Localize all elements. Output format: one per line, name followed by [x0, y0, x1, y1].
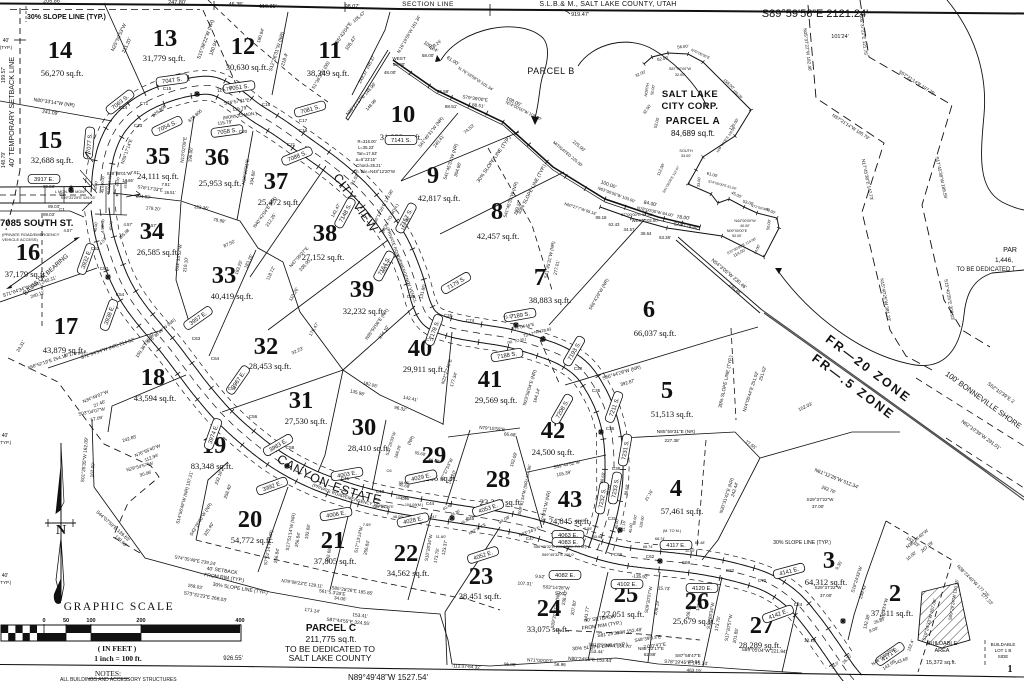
svg-text:C64: C64 — [211, 356, 220, 361]
svg-text:7.59': 7.59' — [363, 522, 372, 527]
svg-text:21: 21 — [321, 527, 346, 554]
svg-text:55.68': 55.68' — [593, 535, 604, 539]
svg-text:37.00': 37.00' — [812, 504, 824, 509]
svg-text:4082 E.: 4082 E. — [555, 573, 575, 579]
svg-text:89.03': 89.03' — [43, 184, 55, 189]
svg-text:C58: C58 — [286, 445, 295, 450]
svg-text:17: 17 — [54, 313, 79, 340]
svg-text:27,530 sq.ft.: 27,530 sq.ft. — [285, 416, 328, 426]
svg-text:4: 4 — [670, 475, 682, 502]
svg-text:82.48': 82.48' — [695, 541, 706, 545]
svg-text:57,461 sq.ft.: 57,461 sq.ft. — [661, 506, 704, 516]
svg-text:18: 18 — [141, 364, 166, 391]
svg-text:3: 3 — [823, 547, 835, 574]
svg-text:7.81': 7.81' — [131, 170, 140, 175]
svg-text:116.35': 116.35' — [259, 4, 276, 10]
svg-text:4.57': 4.57' — [148, 223, 157, 228]
svg-text:C21: C21 — [287, 142, 296, 147]
svg-text:33.00': 33.00' — [681, 154, 692, 158]
svg-text:Ch. Div.=N48°12'20”W: Ch. Div.=N48°12'20”W — [353, 169, 395, 174]
svg-text:43: 43 — [558, 486, 583, 513]
svg-text:26,585 sq.ft.: 26,585 sq.ft. — [137, 247, 180, 257]
svg-text:32,688 sq.ft.: 32,688 sq.ft. — [31, 155, 74, 165]
svg-text:WEST: WEST — [392, 56, 405, 61]
svg-text:28,453 sq.ft.: 28,453 sq.ft. — [249, 361, 292, 371]
svg-text:25,472 sq.ft.: 25,472 sq.ft. — [258, 197, 301, 207]
svg-text:25,953 sq.ft.: 25,953 sq.ft. — [199, 178, 242, 188]
svg-text:56.00': 56.00' — [677, 44, 689, 50]
svg-text:2: 2 — [889, 580, 901, 607]
svg-text:29,911 sq.ft.: 29,911 sq.ft. — [403, 364, 445, 374]
svg-text:104.09(M.): 104.09(M.) — [405, 503, 424, 507]
svg-text:C54: C54 — [116, 292, 125, 297]
svg-text:PAR: PAR — [1003, 247, 1017, 254]
svg-text:41: 41 — [478, 366, 503, 393]
svg-text:37.00': 37.00' — [820, 593, 832, 598]
svg-text:L=35.23': L=35.23' — [358, 145, 374, 150]
svg-text:31,779 sq.ft.: 31,779 sq.ft. — [143, 53, 186, 63]
svg-text:42,457 sq.ft.: 42,457 sq.ft. — [477, 231, 520, 241]
svg-text:S29°37'22”W: S29°37'22”W — [807, 497, 835, 502]
svg-text:40.00': 40.00' — [740, 224, 750, 228]
svg-text:40.00: 40.00 — [101, 176, 106, 185]
svg-text:15,372 sq.ft.: 15,372 sq.ft. — [926, 660, 957, 666]
svg-text:96.06': 96.06' — [504, 662, 517, 668]
svg-text:102.92': 102.92' — [396, 496, 409, 500]
svg-text:4120 E.: 4120 E. — [692, 586, 712, 592]
svg-text:34,562 sq.ft.: 34,562 sq.ft. — [387, 568, 430, 578]
svg-text:S89°45'32”E 206.0': S89°45'32”E 206.0' — [542, 553, 575, 557]
svg-text:C19: C19 — [299, 128, 308, 133]
svg-text:199.57': 199.57' — [1, 67, 7, 83]
svg-text:5.00': 5.00' — [555, 591, 565, 597]
svg-text:( IN FEET ): ( IN FEET ) — [98, 644, 137, 653]
svg-text:37: 37 — [264, 168, 289, 195]
svg-text:45.00: 45.00 — [108, 175, 113, 184]
svg-text:C47: C47 — [526, 536, 535, 541]
svg-text:31: 31 — [289, 387, 314, 414]
svg-text:43,594 sq.ft.: 43,594 sq.ft. — [134, 393, 177, 403]
svg-text:46.35': 46.35' — [229, 2, 244, 8]
svg-text:247.80': 247.80' — [168, 0, 186, 6]
svg-text:S87°58'47”E: S87°58'47”E — [675, 653, 701, 658]
svg-text:AREA: AREA — [935, 648, 950, 654]
svg-text:3917 E.: 3917 E. — [34, 177, 54, 183]
svg-text:N44°00'00”W: N44°00'00”W — [734, 219, 756, 223]
svg-text:C71: C71 — [140, 101, 149, 106]
svg-text:ALL BUILDINGS AND ACCESSORY: ALL BUILDINGS AND ACCESSORY STRUCTURES — [60, 677, 177, 681]
svg-text:68.74': 68.74' — [655, 537, 666, 541]
svg-text:0: 0 — [42, 618, 45, 624]
svg-text:C74: C74 — [466, 318, 475, 323]
svg-text:39: 39 — [350, 276, 375, 303]
svg-text:9: 9 — [427, 162, 439, 189]
svg-text:33,075 sq.ft.: 33,075 sq.ft. — [527, 624, 570, 634]
svg-text:28,410 sq.ft.: 28,410 sq.ft. — [348, 443, 391, 453]
svg-text:200: 200 — [136, 618, 145, 624]
svg-text:211,775 sq.ft.: 211,775 sq.ft. — [306, 634, 357, 644]
svg-text:C13: C13 — [134, 123, 143, 128]
svg-text:C68: C68 — [614, 552, 623, 557]
svg-text:22: 22 — [394, 540, 419, 567]
svg-text:32: 32 — [254, 333, 279, 360]
svg-text:8: 8 — [491, 198, 503, 225]
svg-text:24,500 sq.ft.: 24,500 sq.ft. — [532, 447, 575, 457]
svg-text:C24: C24 — [794, 602, 803, 607]
svg-text:C26: C26 — [407, 294, 416, 299]
svg-text:89.03': 89.03' — [48, 204, 60, 209]
svg-text:919.47': 919.47' — [571, 12, 589, 18]
svg-text:9.52': 9.52' — [535, 574, 545, 580]
svg-text:32,232 sq.ft.: 32,232 sq.ft. — [343, 306, 386, 316]
svg-text:SALT LAKE: SALT LAKE — [662, 89, 718, 100]
svg-text:-135.92': -135.92' — [632, 574, 649, 580]
svg-text:148.79': 148.79' — [1, 152, 7, 168]
svg-text:66,037 sq.ft.: 66,037 sq.ft. — [634, 328, 677, 338]
svg-text:86.58': 86.58' — [437, 89, 449, 94]
svg-text:7.81': 7.81' — [162, 182, 171, 187]
svg-text:S89°34'34”E: S89°34'34”E — [372, 505, 394, 509]
svg-text:15: 15 — [38, 127, 63, 154]
svg-text:C14: C14 — [119, 105, 128, 110]
svg-text:26.51': 26.51' — [164, 190, 175, 195]
svg-text:N85°59'31”E (NR): N85°59'31”E (NR) — [657, 429, 696, 435]
svg-text:463.19': 463.19' — [686, 668, 701, 674]
svg-text:48.09': 48.09' — [575, 519, 586, 523]
svg-text:GRAPHIC SCALE: GRAPHIC SCALE — [64, 601, 175, 613]
svg-text:30: 30 — [352, 414, 377, 441]
svg-text:S86°45'32”E 206.07'(M..TO M.): S86°45'32”E 206.07'(M..TO M.) — [534, 545, 588, 549]
svg-text:38.64: 38.64 — [641, 231, 653, 236]
svg-text:62.43: 62.43 — [609, 222, 621, 227]
svg-text:C69: C69 — [682, 560, 691, 565]
svg-text:7085 SOUTH ST.: 7085 SOUTH ST. — [0, 218, 73, 229]
svg-text:33.64: 33.64 — [688, 659, 700, 664]
svg-text:30,630 sq.ft.: 30,630 sq.ft. — [226, 62, 269, 72]
svg-text:40' TEMPORARY SETBACK LINE: 40' TEMPORARY SETBACK LINE — [7, 57, 16, 167]
svg-text:38,451 sq.ft.: 38,451 sq.ft. — [459, 591, 502, 601]
svg-text:4.57': 4.57' — [64, 228, 73, 233]
svg-text:38: 38 — [313, 220, 338, 247]
svg-text:C62: C62 — [646, 554, 655, 559]
svg-text:56.96: 56.96 — [554, 662, 566, 668]
svg-text:227.38': 227.38' — [665, 438, 680, 443]
svg-text:C77: C77 — [426, 337, 435, 342]
svg-text:N85°22'17”E: N85°22'17”E — [638, 646, 664, 651]
svg-text:24,111 sq.ft.: 24,111 sq.ft. — [137, 171, 179, 181]
svg-text:50.00': 50.00' — [732, 234, 742, 238]
svg-text:58.00': 58.00' — [393, 62, 405, 67]
svg-text:SOUTH: SOUTH — [679, 149, 693, 153]
svg-text:4.57': 4.57' — [124, 222, 133, 227]
svg-text:C20: C20 — [239, 129, 248, 134]
svg-text:C52: C52 — [91, 246, 100, 251]
svg-text:36: 36 — [205, 144, 230, 171]
svg-text:88.51': 88.51' — [445, 104, 457, 109]
svg-text:98.07': 98.07' — [345, 4, 360, 10]
svg-text:16: 16 — [16, 239, 41, 266]
svg-text:C6: C6 — [386, 468, 392, 473]
svg-text:83,348 sq.ft.: 83,348 sq.ft. — [191, 461, 234, 471]
svg-text:N09°00'00”E: N09°00'00”E — [727, 229, 748, 233]
svg-text:S89°31'29”E 129.03': S89°31'29”E 129.03' — [61, 196, 96, 200]
svg-text:SALT LAKE COUNTY: SALT LAKE COUNTY — [289, 653, 372, 663]
svg-text:33: 33 — [212, 262, 237, 289]
svg-text:30% SLOPE LINE (TYP.): 30% SLOPE LINE (TYP.) — [773, 540, 831, 546]
svg-text:30% SLOPE LINE (TYP.): 30% SLOPE LINE (TYP.) — [27, 14, 106, 21]
svg-text:85.18: 85.18 — [596, 215, 608, 220]
svg-text:15.73': 15.73' — [658, 586, 671, 592]
svg-text:107.31': 107.31' — [517, 581, 532, 587]
svg-text:C38: C38 — [612, 466, 621, 471]
svg-text:C22: C22 — [726, 568, 735, 573]
svg-text:C63: C63 — [192, 336, 201, 341]
svg-text:✶: ✶ — [115, 193, 119, 199]
svg-text:11.60': 11.60' — [685, 549, 695, 553]
svg-text:56,270 sq.ft.: 56,270 sq.ft. — [41, 68, 84, 78]
svg-text:62.86': 62.86' — [644, 652, 656, 657]
svg-text:(TYP.): (TYP.) — [0, 45, 13, 50]
svg-text:BUILDABLE: BUILDABLE — [991, 642, 1016, 647]
svg-text:28: 28 — [486, 466, 511, 493]
svg-text:38,349 sq.ft.: 38,349 sq.ft. — [307, 68, 350, 78]
svg-text:S87°00'00”W: S87°00'00”W — [669, 67, 692, 71]
svg-text:63.36': 63.36' — [659, 235, 671, 240]
svg-text:84,689 sq.ft.: 84,689 sq.ft. — [671, 129, 715, 138]
svg-text:51,513 sq.ft.: 51,513 sq.ft. — [651, 409, 694, 419]
svg-text:37,805 sq.ft.: 37,805 sq.ft. — [314, 556, 357, 566]
svg-text:101'24': 101'24' — [831, 34, 848, 40]
svg-text:42,817 sq.ft.: 42,817 sq.ft. — [418, 193, 461, 203]
svg-text:12: 12 — [231, 33, 256, 60]
svg-text:C36: C36 — [606, 426, 615, 431]
svg-text:1 inch = 100 ft.: 1 inch = 100 ft. — [94, 654, 142, 663]
svg-text:400: 400 — [235, 618, 244, 624]
svg-text:S89°59'56”E 2121.24': S89°59'56”E 2121.24' — [762, 8, 868, 20]
svg-text:C70: C70 — [758, 578, 767, 583]
svg-text:SECTION LINE: SECTION LINE — [402, 1, 454, 8]
svg-text:1,446,: 1,446, — [995, 257, 1013, 264]
svg-text:SIDE: SIDE — [998, 654, 1009, 659]
svg-text:BUILDABLE: BUILDABLE — [927, 641, 958, 647]
svg-text:N89°49'48”W 1527.54': N89°49'48”W 1527.54' — [348, 673, 429, 681]
svg-text:C15: C15 — [163, 86, 172, 91]
svg-text:N: N — [56, 523, 66, 538]
svg-text:7.59': 7.59' — [584, 527, 592, 531]
svg-text:32.00': 32.00' — [675, 73, 686, 77]
svg-text:68.74': 68.74' — [643, 545, 654, 549]
svg-text:926.55': 926.55' — [223, 656, 243, 662]
svg-text:C44: C44 — [426, 501, 435, 506]
svg-text:38,883 sq.ft.: 38,883 sq.ft. — [529, 295, 572, 305]
svg-text:C35: C35 — [592, 388, 601, 393]
svg-text:4102 E.: 4102 E. — [617, 582, 637, 588]
svg-text:C43: C43 — [376, 489, 385, 494]
svg-text:C17: C17 — [299, 118, 308, 123]
svg-text:C53: C53 — [100, 266, 109, 271]
svg-text:40,419 sq.ft.: 40,419 sq.ft. — [211, 291, 254, 301]
svg-text:C1: C1 — [59, 207, 65, 212]
svg-text:C25: C25 — [444, 313, 453, 318]
svg-text:11.60': 11.60' — [436, 534, 447, 539]
svg-text:37,511 sq.ft.: 37,511 sq.ft. — [871, 608, 913, 618]
svg-text:40': 40' — [2, 573, 9, 579]
svg-text:7141 S.: 7141 S. — [391, 138, 411, 144]
svg-text:1: 1 — [1008, 664, 1013, 675]
svg-text:205.86': 205.86' — [43, 0, 61, 5]
svg-text:(M. TO M.): (M. TO M.) — [663, 529, 682, 533]
svg-text:100: 100 — [86, 618, 95, 624]
svg-text:35: 35 — [146, 143, 171, 170]
svg-text:(TYP.): (TYP.) — [0, 580, 12, 585]
svg-text:40': 40' — [2, 433, 9, 439]
svg-text:40.00: 40.00 — [101, 219, 106, 228]
svg-text:40': 40' — [3, 38, 10, 44]
svg-text:10: 10 — [391, 101, 416, 128]
svg-text:R=316.00': R=316.00' — [357, 139, 376, 144]
svg-text:23: 23 — [469, 563, 494, 590]
svg-text:40.00: 40.00 — [109, 221, 114, 230]
svg-text:C47: C47 — [429, 514, 437, 519]
svg-text:Chord=35.21': Chord=35.21' — [356, 163, 381, 168]
svg-text:S38°08'01”W: S38°08'01”W — [107, 171, 132, 176]
svg-text:Δ=6°23'15”: Δ=6°23'15” — [356, 157, 377, 162]
svg-text:40.00: 40.00 — [116, 177, 121, 186]
svg-text:55.68': 55.68' — [399, 480, 410, 485]
svg-text:89.03': 89.03' — [43, 212, 55, 217]
svg-text:14: 14 — [48, 37, 73, 64]
svg-text:C57: C57 — [228, 386, 237, 391]
svg-text:(TYP.): (TYP.) — [0, 440, 12, 445]
svg-text:PARCEL B: PARCEL B — [527, 66, 575, 76]
svg-text:48.00': 48.00' — [384, 70, 396, 75]
svg-text:45.57: 45.57 — [124, 179, 129, 188]
svg-text:13: 13 — [153, 25, 178, 52]
svg-text:13.10': 13.10' — [804, 638, 817, 644]
svg-text:C41: C41 — [341, 476, 350, 481]
svg-text:PARCEL A: PARCEL A — [666, 116, 721, 127]
svg-text:LOT 1 B: LOT 1 B — [995, 648, 1012, 653]
svg-text:5: 5 — [661, 377, 673, 404]
svg-text:58.00': 58.00' — [422, 53, 434, 58]
svg-text:50: 50 — [63, 618, 69, 624]
svg-text:Tan=17.63': Tan=17.63' — [357, 151, 378, 156]
svg-text:S29°37'22”W: S29°37'22”W — [815, 585, 843, 590]
svg-text:4117 E.: 4117 E. — [666, 543, 686, 549]
svg-text:C28: C28 — [574, 366, 583, 371]
svg-text:20: 20 — [238, 506, 263, 533]
svg-text:29,569 sq.ft.: 29,569 sq.ft. — [475, 395, 518, 405]
svg-text:S.L.B.& M., SALT LAKE COUNTY,: S.L.B.& M., SALT LAKE COUNTY, UTAH — [539, 1, 676, 8]
svg-text:TO BE DEDICATED T: TO BE DEDICATED T — [956, 267, 1015, 273]
svg-text:CITY CORP.: CITY CORP. — [662, 101, 719, 112]
svg-text:48.09': 48.09' — [393, 514, 404, 519]
svg-text:C18: C18 — [262, 102, 271, 107]
svg-text:C56: C56 — [249, 414, 258, 419]
svg-text:6: 6 — [643, 296, 655, 323]
svg-text:34.57: 34.57 — [624, 227, 636, 232]
